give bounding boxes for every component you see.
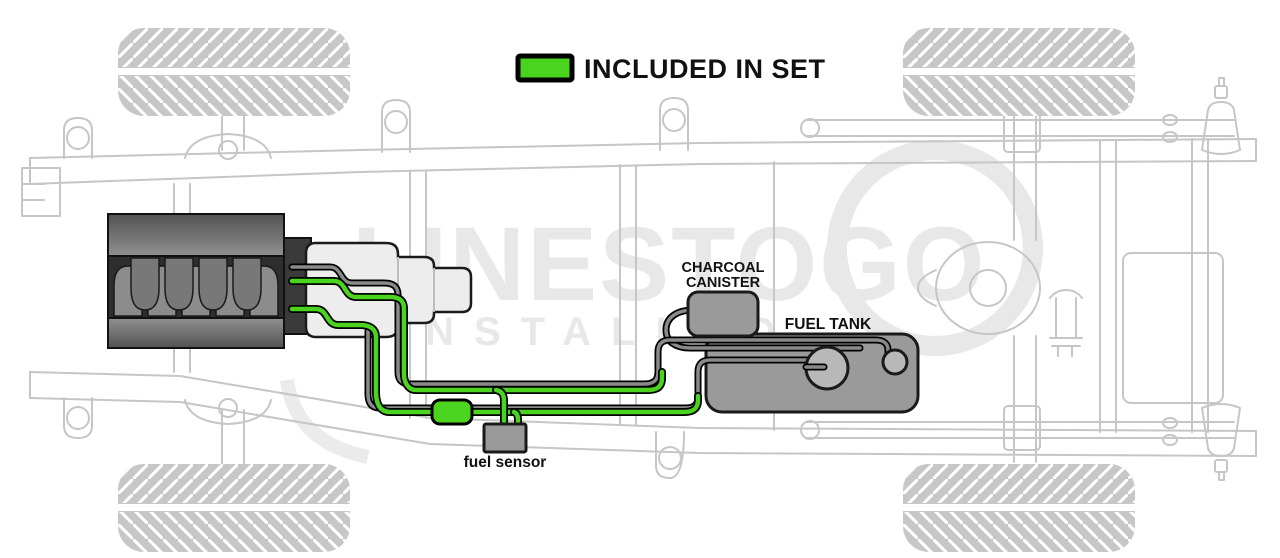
- engine-mount-hump: [185, 400, 271, 424]
- legend: INCLUDED IN SET: [518, 54, 826, 84]
- tire-rear-right: [903, 464, 1135, 552]
- fuel-tank-label: FUEL TANK: [785, 316, 872, 333]
- fuel-sensor-label: fuel sensor: [464, 454, 547, 471]
- tire-rear-left: [903, 28, 1135, 116]
- frame-rail-top-inner: [30, 161, 1256, 184]
- engine-bottom-band: [108, 318, 284, 348]
- tow-bracket: [22, 168, 60, 216]
- legend-label: INCLUDED IN SET: [584, 54, 826, 84]
- watermark-swoosh: [287, 380, 368, 457]
- frame-rail-top-outer: [30, 139, 1256, 158]
- engine-top-band: [108, 214, 284, 256]
- charcoal-canister-label-line1: CHARCOAL: [682, 260, 765, 276]
- vent-port: [883, 350, 907, 374]
- crossmember-rear2: [1192, 139, 1208, 432]
- body-mount-tab: [64, 398, 92, 438]
- inline-filter: [432, 400, 472, 424]
- body-mount-tab: [64, 118, 92, 158]
- charcoal-canister: [688, 292, 758, 336]
- fuel-sensor: [484, 424, 526, 452]
- crossmember-rear1: [1100, 140, 1116, 432]
- tire-front-right: [118, 464, 350, 552]
- charcoal-canister-label-line2: CANISTER: [686, 275, 761, 291]
- tire-front-left: [118, 28, 350, 116]
- legend-swatch: [518, 56, 572, 80]
- fuel-line-diagram-page: LINESTOGO INSTALLED: [0, 0, 1280, 558]
- filler-neck: [1050, 290, 1082, 356]
- chassis-diagram: LINESTOGO INSTALLED: [0, 0, 1280, 558]
